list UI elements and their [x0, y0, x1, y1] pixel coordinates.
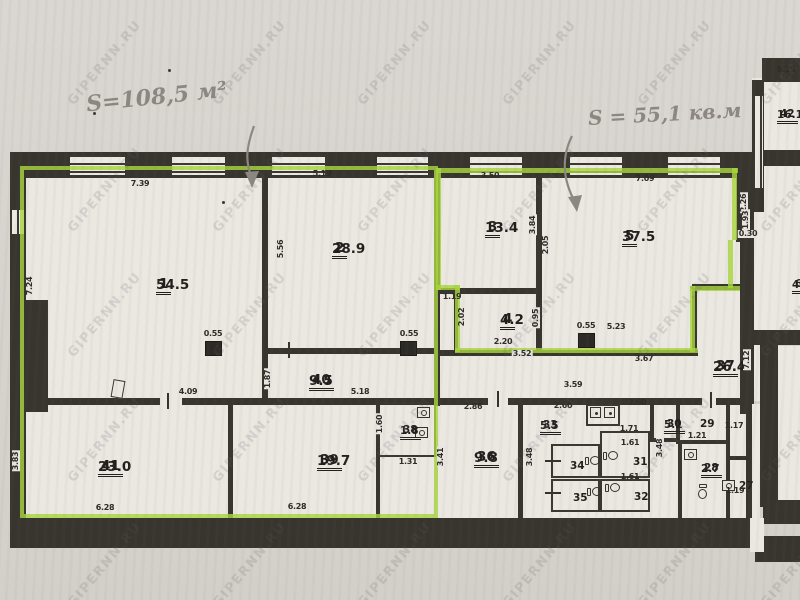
wall: [650, 402, 654, 442]
dimension-label: 1.87: [264, 369, 272, 390]
dimension-label: 0.30: [738, 230, 759, 238]
room-2-area: 28.9: [332, 241, 365, 257]
dimension-label: 1.71: [620, 425, 639, 433]
dimension-label: 3.59: [564, 381, 583, 389]
window: [753, 96, 763, 188]
dimension-tick: [288, 342, 290, 358]
site-watermark: GIPERNN.RU: [500, 18, 580, 109]
dimension-label: 7.09: [636, 175, 655, 183]
dimension-tick: [545, 492, 561, 494]
room-41-area: 23.0: [98, 459, 131, 475]
toilet-bowl-icon: [590, 456, 600, 465]
ink-speck: [222, 201, 225, 204]
vent-dot-icon: [609, 412, 612, 415]
toilet-tank-icon: [605, 484, 609, 492]
dimension-label: 4.09: [179, 388, 198, 396]
dimension-label: 1.60: [376, 414, 384, 435]
sink-icon: [684, 449, 697, 460]
dimension-label: 6.28: [288, 503, 307, 511]
vent-dot-icon: [595, 412, 598, 415]
dimension-label: 1.19: [443, 293, 462, 301]
dimension-label: 5.18: [351, 388, 370, 396]
dimension-label: 5.23: [607, 323, 626, 331]
room-1-area: 54.5: [156, 277, 189, 293]
toilet-icon: [603, 450, 619, 461]
toilet-icon: [585, 455, 601, 466]
dimension-label: 5.56: [277, 240, 285, 259]
room-40-area: 9.5: [309, 373, 333, 389]
toilet-bowl-icon: [608, 451, 618, 460]
ink-speck: [168, 69, 171, 72]
room-6-area: 40.: [792, 279, 800, 292]
dimension-label: 3.50: [481, 172, 500, 180]
dimension-label: 2.60: [628, 399, 647, 407]
vent-shaft: [578, 333, 595, 348]
room-39-area: 19.7: [317, 453, 350, 469]
room-28-area: 2.7: [701, 463, 720, 476]
dimension-label: 1.61: [621, 439, 640, 447]
room-29-number: 29: [700, 418, 715, 431]
dimension-tick: [167, 393, 169, 409]
wall: [763, 500, 800, 524]
dimension-label: 2.02: [458, 308, 466, 327]
dimension-label: 5.19: [313, 170, 332, 178]
dimension-label: 1.93: [742, 210, 750, 231]
room-area-fill: [776, 346, 800, 500]
dimension-tick: [733, 458, 749, 460]
dimension-label: 2.05: [542, 235, 550, 256]
dimension-label: 1.19: [726, 487, 745, 495]
sink-bowl-icon: [688, 452, 694, 458]
dimension-label: 3.41: [437, 447, 445, 468]
room-35-number: 35: [573, 492, 588, 505]
toilet-icon: [587, 486, 603, 497]
dimension-label: 0.55: [400, 330, 419, 338]
dimension-label: 6.28: [96, 504, 115, 512]
toilet-tank-icon: [603, 452, 607, 460]
room-34-number: 34: [570, 460, 585, 473]
room-36-area: 9.8: [474, 450, 498, 466]
highlight-outline-segment: [455, 348, 698, 353]
toilet-bowl-icon: [610, 483, 620, 492]
toilet-bowl-icon: [698, 489, 707, 499]
dimension-label: 7.39: [131, 180, 150, 188]
dimension-label: 3.84: [529, 215, 537, 236]
toilet-icon: [605, 482, 621, 493]
handwritten-area-total: S=108,5 м²: [85, 77, 228, 118]
toilet-bowl-icon: [592, 487, 602, 496]
toilet-icon: [697, 484, 708, 500]
room-42-area: 16.1: [777, 109, 800, 122]
dimension-tick: [545, 460, 561, 462]
highlight-outline-segment: [436, 168, 441, 290]
dimension-label: 7.24: [26, 277, 34, 296]
vent-grille-icon: [590, 407, 601, 418]
vent-grille-icon: [604, 407, 615, 418]
floor-plan-scan: 154.5228.9313.444.2537.5409.54123.03919.…: [0, 0, 800, 600]
toilet-tank-icon: [699, 484, 707, 488]
dimension-label: 7.12: [743, 350, 751, 371]
door-opening: [750, 518, 764, 552]
dimension-label: 2.86: [464, 403, 483, 411]
dimension-label: 0.55: [204, 330, 223, 338]
highlight-outline-segment: [732, 168, 737, 240]
dimension-label: 1.17: [725, 422, 744, 430]
wall: [726, 402, 730, 518]
highlight-outline-segment: [728, 240, 733, 288]
dimension-label: 1.31: [399, 458, 418, 466]
toilet-tank-icon: [585, 457, 589, 465]
door-opening: [752, 404, 760, 518]
room-32-number: 32: [634, 491, 649, 504]
dimension-label: 3.83: [12, 451, 20, 472]
room-5-area: 37.5: [622, 229, 655, 245]
dimension-tick: [497, 391, 499, 407]
site-watermark: GIPERNN.RU: [355, 18, 435, 109]
wall: [678, 444, 682, 518]
site-watermark: GIPERNN.RU: [635, 18, 715, 109]
vent-shaft: [400, 341, 417, 356]
handwritten-area-right-zone: S = 55,1 кв.м: [587, 98, 741, 130]
dimension-label: 0.55: [577, 322, 596, 330]
